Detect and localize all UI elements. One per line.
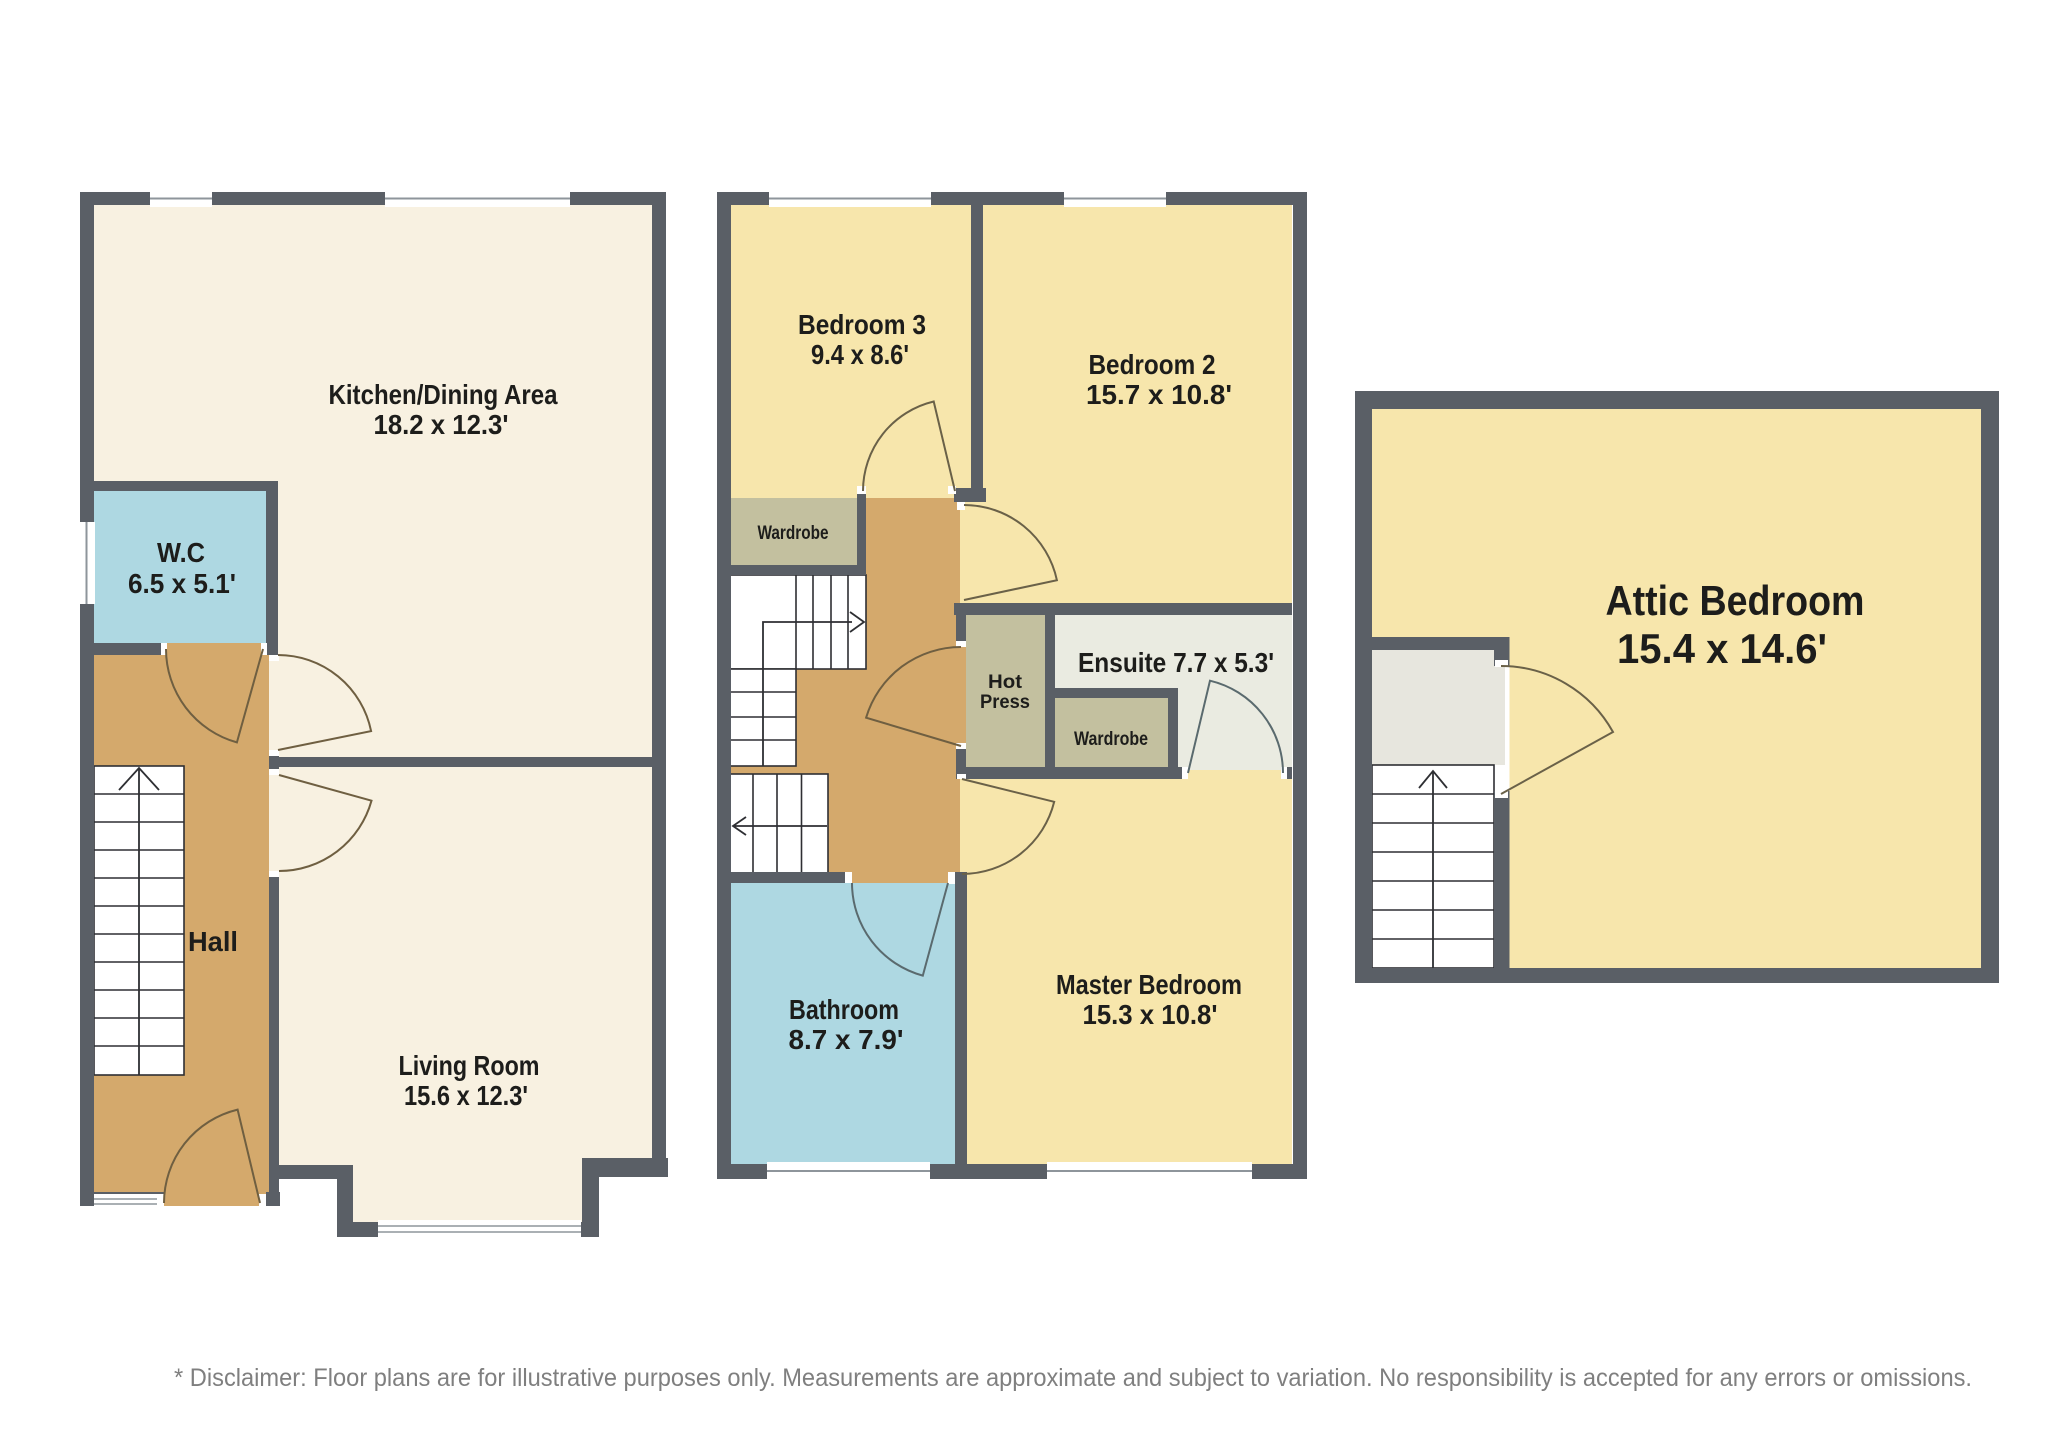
svg-text:Ensuite 7.7 x 5.3': Ensuite 7.7 x 5.3' — [1078, 647, 1274, 678]
svg-text:15.7 x 10.8': 15.7 x 10.8' — [1086, 379, 1232, 410]
svg-text:Kitchen/Dining Area: Kitchen/Dining Area — [329, 379, 558, 410]
svg-text:15.4 x 14.6': 15.4 x 14.6' — [1617, 625, 1827, 672]
svg-text:Wardrobe: Wardrobe — [758, 523, 829, 544]
svg-text:Master Bedroom: Master Bedroom — [1056, 969, 1242, 1000]
svg-text:18.2 x 12.3': 18.2 x 12.3' — [374, 409, 509, 440]
svg-text:Press: Press — [980, 692, 1030, 713]
svg-text:W.C: W.C — [157, 537, 205, 568]
svg-text:Attic Bedroom: Attic Bedroom — [1606, 577, 1865, 624]
svg-text:6.5 x 5.1': 6.5 x 5.1' — [128, 568, 236, 599]
svg-text:Bathroom: Bathroom — [789, 994, 899, 1025]
svg-text:15.3 x 10.8': 15.3 x 10.8' — [1083, 999, 1218, 1030]
svg-text:Bedroom 2: Bedroom 2 — [1089, 349, 1216, 380]
svg-text:Hot: Hot — [988, 672, 1023, 693]
svg-text:9.4 x 8.6': 9.4 x 8.6' — [811, 339, 909, 370]
svg-text:Bedroom 3: Bedroom 3 — [798, 309, 926, 340]
svg-text:* Disclaimer: Floor plans are: * Disclaimer: Floor plans are for illust… — [174, 1364, 1972, 1392]
svg-text:Wardrobe: Wardrobe — [1074, 729, 1148, 750]
svg-text:Hall: Hall — [188, 926, 238, 957]
svg-text:8.7 x 7.9': 8.7 x 7.9' — [789, 1024, 904, 1055]
svg-text:Living Room: Living Room — [399, 1050, 540, 1081]
svg-text:15.6 x 12.3': 15.6 x 12.3' — [404, 1080, 528, 1111]
